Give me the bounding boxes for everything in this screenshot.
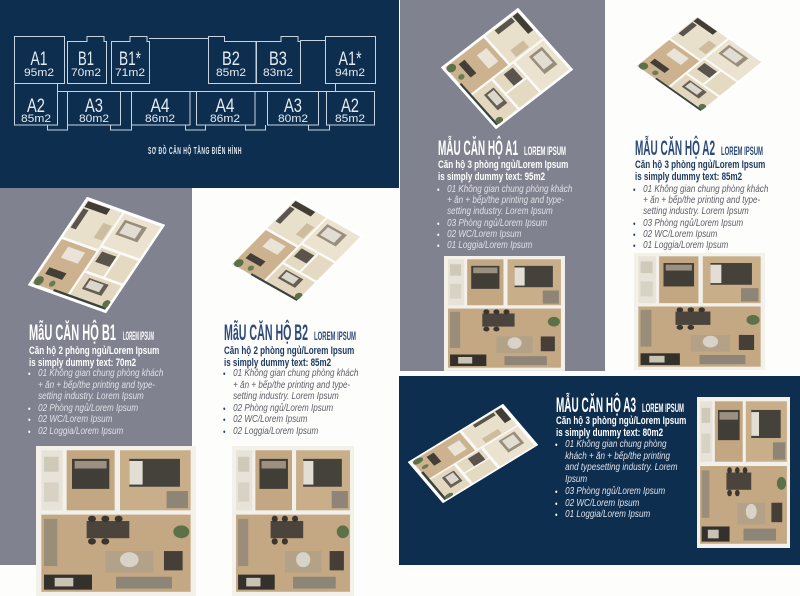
svg-text:83m2: 83m2 <box>263 67 293 79</box>
svg-text:95m2: 95m2 <box>24 67 54 79</box>
svg-text:LOREM IPSUM: LOREM IPSUM <box>721 144 763 158</box>
svg-text:86m2: 86m2 <box>145 113 175 125</box>
svg-text:SƠ ĐỒ CĂN HỘ TẦNG ĐIỂN HÌNH: SƠ ĐỒ CĂN HỘ TẦNG ĐIỂN HÌNH <box>148 144 242 157</box>
svg-text:85m2: 85m2 <box>21 113 51 125</box>
svg-text:71m2: 71m2 <box>115 67 145 79</box>
svg-text:85m2: 85m2 <box>335 113 365 125</box>
svg-text:80m2: 80m2 <box>79 113 109 125</box>
svg-text:70m2: 70m2 <box>71 67 101 79</box>
svg-text:MẪU CĂN HỘ A2: MẪU CĂN HỘ A2 <box>635 136 715 160</box>
svg-text:80m2: 80m2 <box>278 113 308 125</box>
svg-text:LOREM IPSUM: LOREM IPSUM <box>642 401 684 415</box>
svg-text:LOREM IPSUM: LOREM IPSUM <box>314 329 356 343</box>
svg-text:LOREM IPSUM: LOREM IPSUM <box>524 144 566 158</box>
svg-text:MẫU CĂN HỘ B2: MẫU CĂN HỘ B2 <box>224 320 308 345</box>
svg-text:MẫU CĂN HỘ B1: MẫU CĂN HỘ B1 <box>29 320 116 345</box>
svg-text:85m2: 85m2 <box>216 67 246 79</box>
svg-text:94m2: 94m2 <box>335 67 365 79</box>
svg-text:MẪU CĂN HỘ A1: MẪU CĂN HỘ A1 <box>438 136 518 160</box>
svg-text:LOREM IPSUM: LOREM IPSUM <box>123 329 154 343</box>
svg-text:86m2: 86m2 <box>210 113 240 125</box>
svg-text:MẪU CĂN HỘ A3: MẪU CĂN HỘ A3 <box>556 393 636 417</box>
